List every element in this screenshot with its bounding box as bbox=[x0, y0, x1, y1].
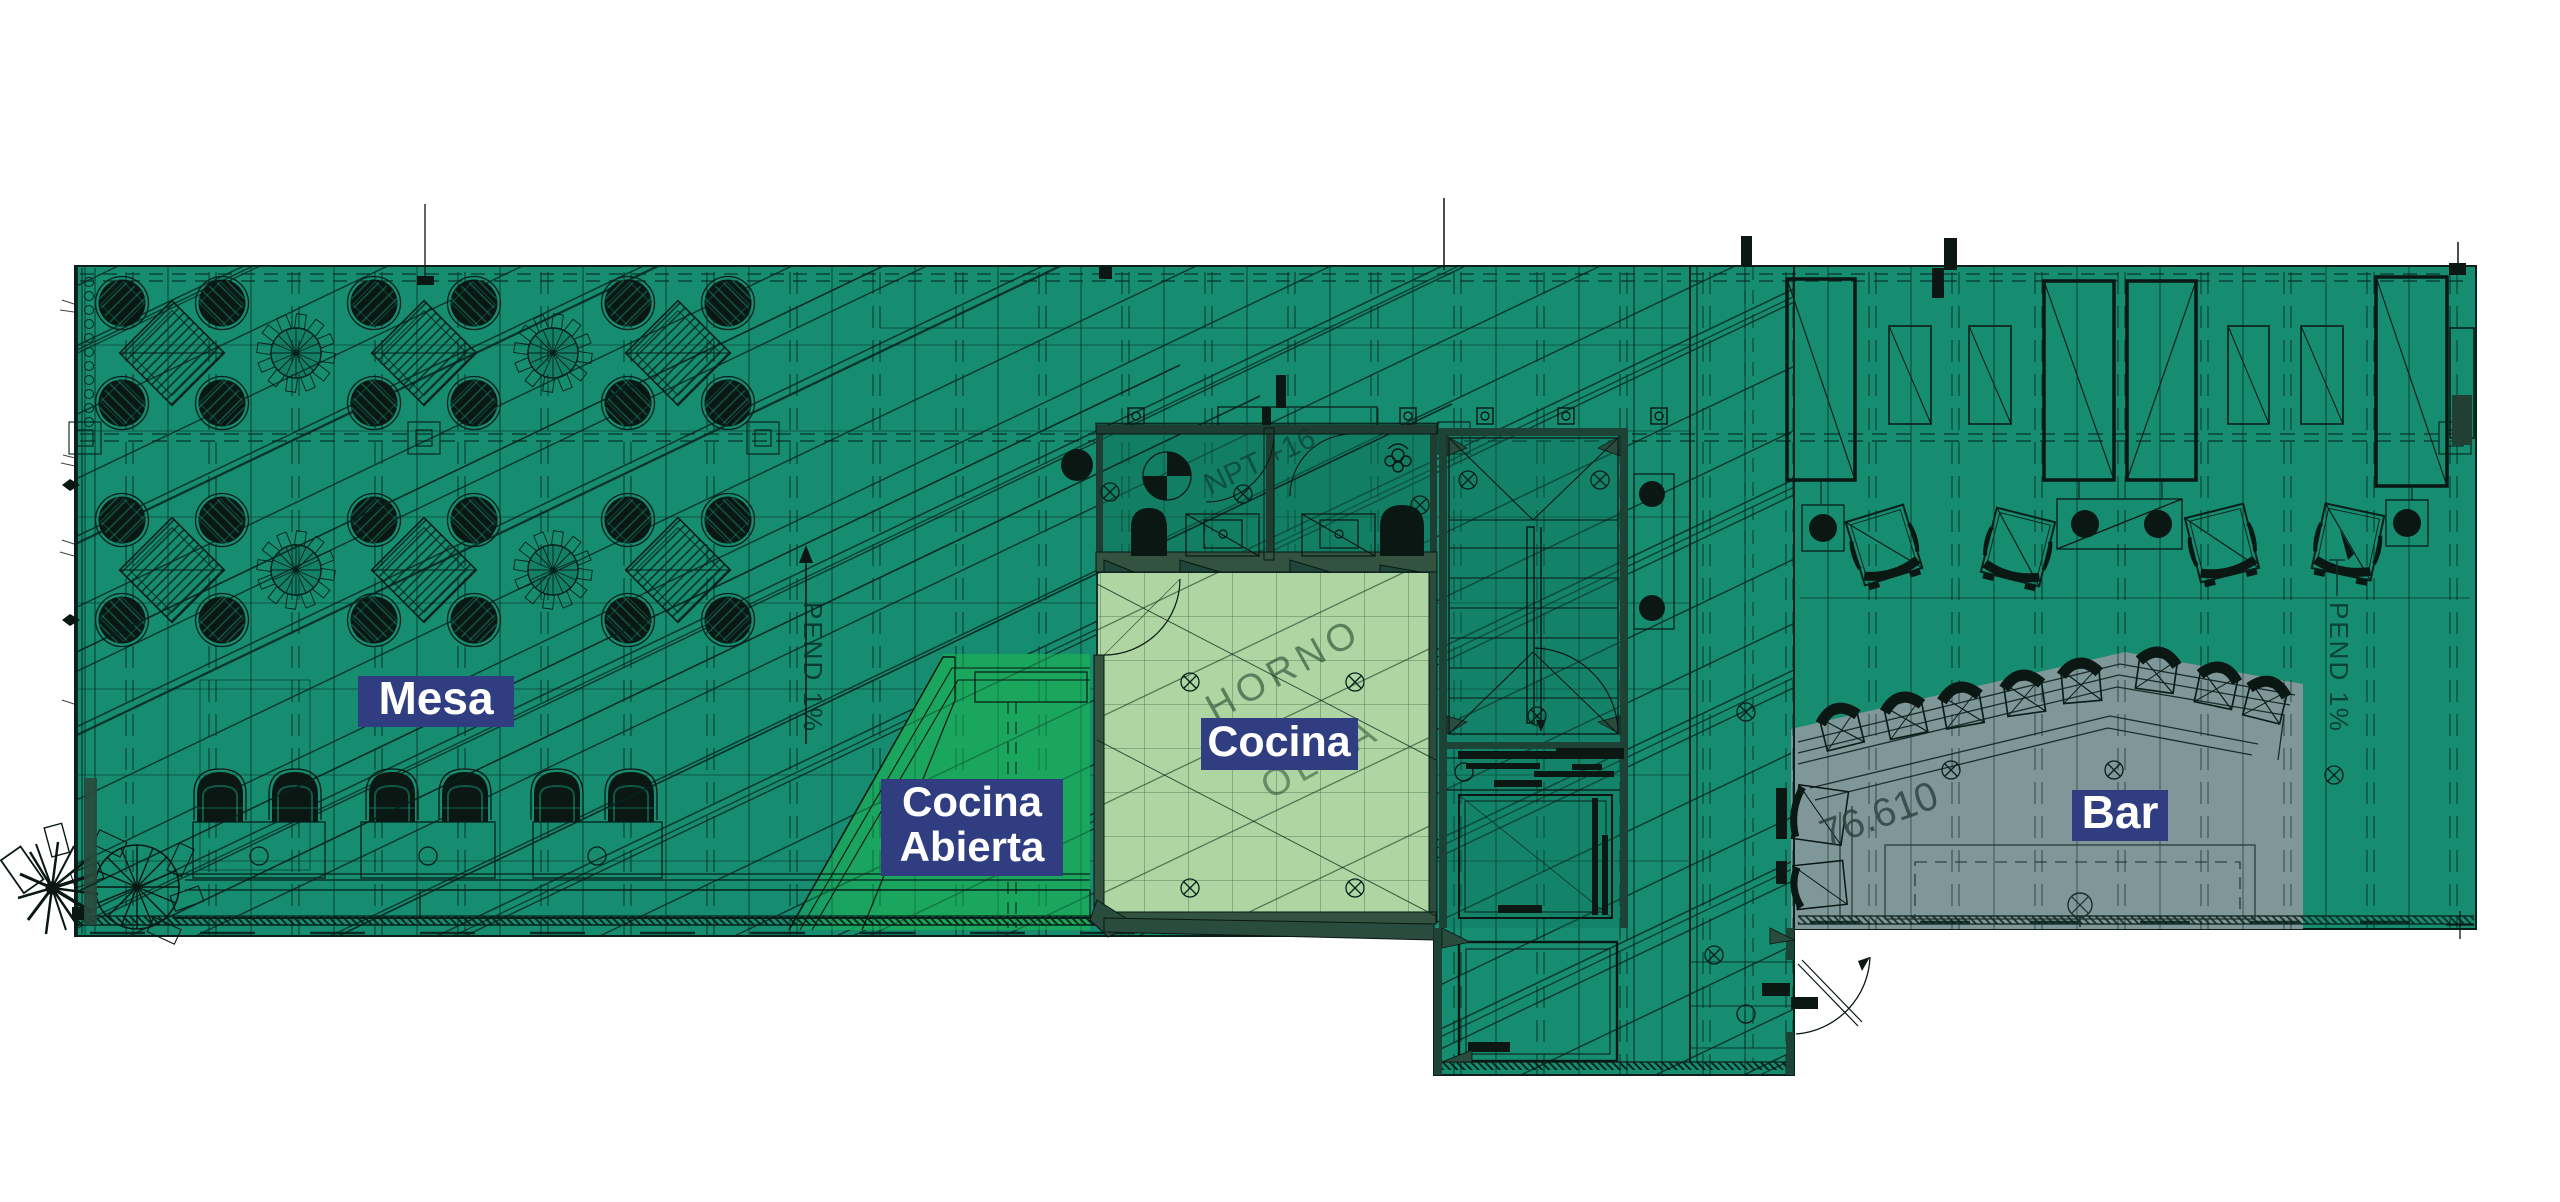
svg-text:Bar: Bar bbox=[2082, 786, 2159, 838]
svg-text:PEND 1%: PEND 1% bbox=[798, 602, 828, 733]
svg-text:Cocina: Cocina bbox=[902, 778, 1043, 825]
svg-text:Cocina: Cocina bbox=[1207, 718, 1351, 766]
svg-text:Mesa: Mesa bbox=[378, 672, 493, 724]
svg-text:PEND 1%: PEND 1% bbox=[2324, 602, 2354, 733]
svg-text:Abierta: Abierta bbox=[900, 823, 1045, 870]
